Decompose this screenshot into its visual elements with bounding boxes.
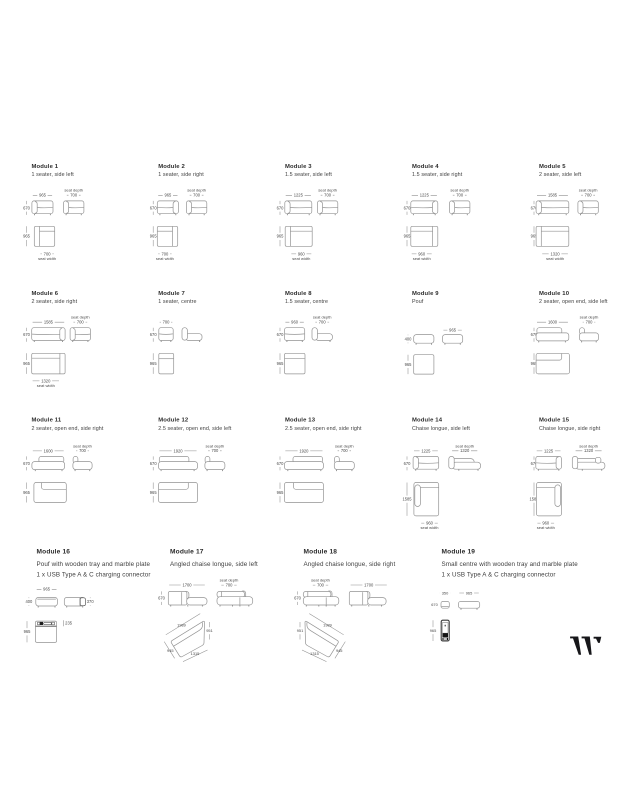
svg-text:2 seater, open end, side right: 2 seater, open end, side right xyxy=(32,426,104,432)
svg-text:1320: 1320 xyxy=(584,448,594,453)
svg-text:965: 965 xyxy=(277,490,285,495)
svg-text:seat width: seat width xyxy=(413,256,431,261)
svg-text:Module 13: Module 13 xyxy=(285,418,316,424)
svg-text:2.5 seater, open end, side rig: 2.5 seater, open end, side right xyxy=(285,426,362,432)
svg-text:670: 670 xyxy=(150,332,158,337)
svg-text:1585: 1585 xyxy=(44,320,54,325)
svg-text:Module 5: Module 5 xyxy=(539,164,566,170)
svg-text:945: 945 xyxy=(167,648,174,653)
svg-text:965: 965 xyxy=(23,361,31,366)
svg-text:670: 670 xyxy=(294,596,302,601)
svg-text:370: 370 xyxy=(87,599,95,604)
svg-text:1315: 1315 xyxy=(191,651,200,656)
svg-text:1600: 1600 xyxy=(44,448,54,453)
svg-text:1225: 1225 xyxy=(420,193,430,198)
svg-text:965: 965 xyxy=(405,362,413,367)
svg-text:Module 16: Module 16 xyxy=(37,549,71,556)
svg-text:670: 670 xyxy=(23,332,31,337)
svg-text:1225: 1225 xyxy=(544,448,554,453)
svg-text:1585: 1585 xyxy=(548,193,558,198)
svg-text:965: 965 xyxy=(150,234,158,239)
svg-text:400: 400 xyxy=(25,599,33,604)
svg-text:700: 700 xyxy=(226,583,234,588)
svg-text:2 seater, side left: 2 seater, side left xyxy=(539,172,582,178)
svg-text:1225: 1225 xyxy=(294,193,304,198)
svg-text:1 seater, side right: 1 seater, side right xyxy=(158,172,204,178)
svg-text:965: 965 xyxy=(24,629,32,634)
svg-text:1320: 1320 xyxy=(460,448,470,453)
svg-text:1989: 1989 xyxy=(177,623,186,628)
svg-text:1 seater, centre: 1 seater, centre xyxy=(158,299,196,305)
svg-text:1700: 1700 xyxy=(182,582,192,587)
svg-text:700: 700 xyxy=(317,583,325,588)
svg-text:670: 670 xyxy=(23,205,31,210)
svg-text:670: 670 xyxy=(150,205,158,210)
svg-text:700: 700 xyxy=(211,448,219,453)
svg-text:1315: 1315 xyxy=(310,651,319,656)
svg-text:Module 7: Module 7 xyxy=(158,291,185,297)
svg-text:700: 700 xyxy=(341,448,349,453)
svg-text:670: 670 xyxy=(158,596,166,601)
svg-text:670: 670 xyxy=(277,461,285,466)
svg-text:seat width: seat width xyxy=(420,525,438,530)
svg-text:235: 235 xyxy=(65,621,73,626)
svg-text:2 seater, open end, side left: 2 seater, open end, side left xyxy=(539,299,608,305)
svg-text:400: 400 xyxy=(405,336,413,341)
svg-text:965: 965 xyxy=(164,193,172,198)
svg-text:2.5 seater, open end, side lef: 2.5 seater, open end, side left xyxy=(158,426,232,432)
svg-text:Module 14: Module 14 xyxy=(412,418,443,424)
svg-text:seat width: seat width xyxy=(37,383,55,388)
svg-text:965: 965 xyxy=(277,361,285,366)
svg-text:700: 700 xyxy=(79,448,87,453)
svg-text:960: 960 xyxy=(291,320,299,325)
svg-text:Module 8: Module 8 xyxy=(285,291,312,297)
svg-text:1.5 seater, centre: 1.5 seater, centre xyxy=(285,299,328,305)
svg-text:1.5 seater, side right: 1.5 seater, side right xyxy=(412,172,463,178)
svg-text:seat width: seat width xyxy=(546,256,564,261)
svg-text:965: 965 xyxy=(23,490,31,495)
svg-text:670: 670 xyxy=(277,332,285,337)
svg-text:Chaise longue, side right: Chaise longue, side right xyxy=(539,426,601,432)
svg-text:670: 670 xyxy=(431,602,438,607)
svg-text:700: 700 xyxy=(324,193,332,198)
svg-text:seat width: seat width xyxy=(156,256,174,261)
svg-text:Pouf: Pouf xyxy=(412,299,424,305)
svg-text:951: 951 xyxy=(297,628,304,633)
svg-text:Module 18: Module 18 xyxy=(304,549,338,556)
svg-text:seat width: seat width xyxy=(537,525,555,530)
svg-text:700: 700 xyxy=(193,193,201,198)
svg-text:Module 10: Module 10 xyxy=(539,291,570,297)
svg-text:Chaise longue, side left: Chaise longue, side left xyxy=(412,426,470,432)
svg-text:700: 700 xyxy=(163,320,171,325)
svg-text:700: 700 xyxy=(319,320,327,325)
svg-text:1989: 1989 xyxy=(323,623,332,628)
svg-text:670: 670 xyxy=(404,205,412,210)
svg-text:Module 2: Module 2 xyxy=(158,164,185,170)
svg-text:700: 700 xyxy=(585,193,593,198)
svg-text:Module 9: Module 9 xyxy=(412,291,439,297)
svg-text:Small centre with wooden tray: Small centre with wooden tray and marble… xyxy=(442,561,579,568)
svg-text:670: 670 xyxy=(23,461,31,466)
svg-text:965: 965 xyxy=(43,587,51,592)
svg-text:seat width: seat width xyxy=(292,256,310,261)
svg-text:Module 1: Module 1 xyxy=(32,164,59,170)
svg-text:700: 700 xyxy=(586,320,594,325)
svg-text:1 x USB Type A & C charging co: 1 x USB Type A & C charging connector xyxy=(442,572,556,579)
svg-text:670: 670 xyxy=(404,461,412,466)
svg-text:Module 19: Module 19 xyxy=(442,549,476,556)
svg-text:700: 700 xyxy=(77,320,85,325)
svg-text:Pouf with wooden tray and marb: Pouf with wooden tray and marble plate xyxy=(37,561,151,568)
svg-text:2 seater, side right: 2 seater, side right xyxy=(32,299,78,305)
svg-text:Module 17: Module 17 xyxy=(170,549,204,556)
svg-text:670: 670 xyxy=(277,205,285,210)
svg-text:965: 965 xyxy=(23,234,31,239)
svg-text:1225: 1225 xyxy=(421,448,431,453)
svg-text:Module 15: Module 15 xyxy=(539,418,570,424)
svg-text:965: 965 xyxy=(39,193,47,198)
svg-text:1.5 seater, side left: 1.5 seater, side left xyxy=(285,172,332,178)
svg-text:Module 6: Module 6 xyxy=(32,291,59,297)
svg-text:945: 945 xyxy=(336,648,343,653)
svg-text:1 x USB Type A & C charging co: 1 x USB Type A & C charging connector xyxy=(37,572,151,579)
svg-text:965: 965 xyxy=(430,628,437,633)
svg-text:Module 4: Module 4 xyxy=(412,164,439,170)
svg-text:700: 700 xyxy=(70,193,78,198)
svg-text:350: 350 xyxy=(442,590,449,595)
svg-text:965: 965 xyxy=(150,490,158,495)
svg-text:1920: 1920 xyxy=(299,448,309,453)
svg-text:1700: 1700 xyxy=(364,582,374,587)
svg-text:965: 965 xyxy=(449,328,457,333)
svg-text:700: 700 xyxy=(456,193,464,198)
svg-text:965: 965 xyxy=(277,234,285,239)
svg-text:Module 12: Module 12 xyxy=(158,418,189,424)
svg-text:965: 965 xyxy=(404,234,412,239)
svg-text:Angled chaise longue, side lef: Angled chaise longue, side left xyxy=(170,561,258,568)
svg-text:Angled chaise longue, side rig: Angled chaise longue, side right xyxy=(304,561,396,568)
svg-text:951: 951 xyxy=(206,628,213,633)
svg-text:965: 965 xyxy=(150,361,158,366)
svg-text:670: 670 xyxy=(150,461,158,466)
svg-text:1920: 1920 xyxy=(173,448,183,453)
svg-text:965: 965 xyxy=(466,590,473,595)
svg-text:1585: 1585 xyxy=(402,497,412,502)
svg-text:1600: 1600 xyxy=(548,320,558,325)
svg-text:seat width: seat width xyxy=(38,256,56,261)
svg-text:1 seater, side left: 1 seater, side left xyxy=(32,172,75,178)
svg-text:Module 11: Module 11 xyxy=(32,418,62,424)
svg-text:Module 3: Module 3 xyxy=(285,164,312,170)
